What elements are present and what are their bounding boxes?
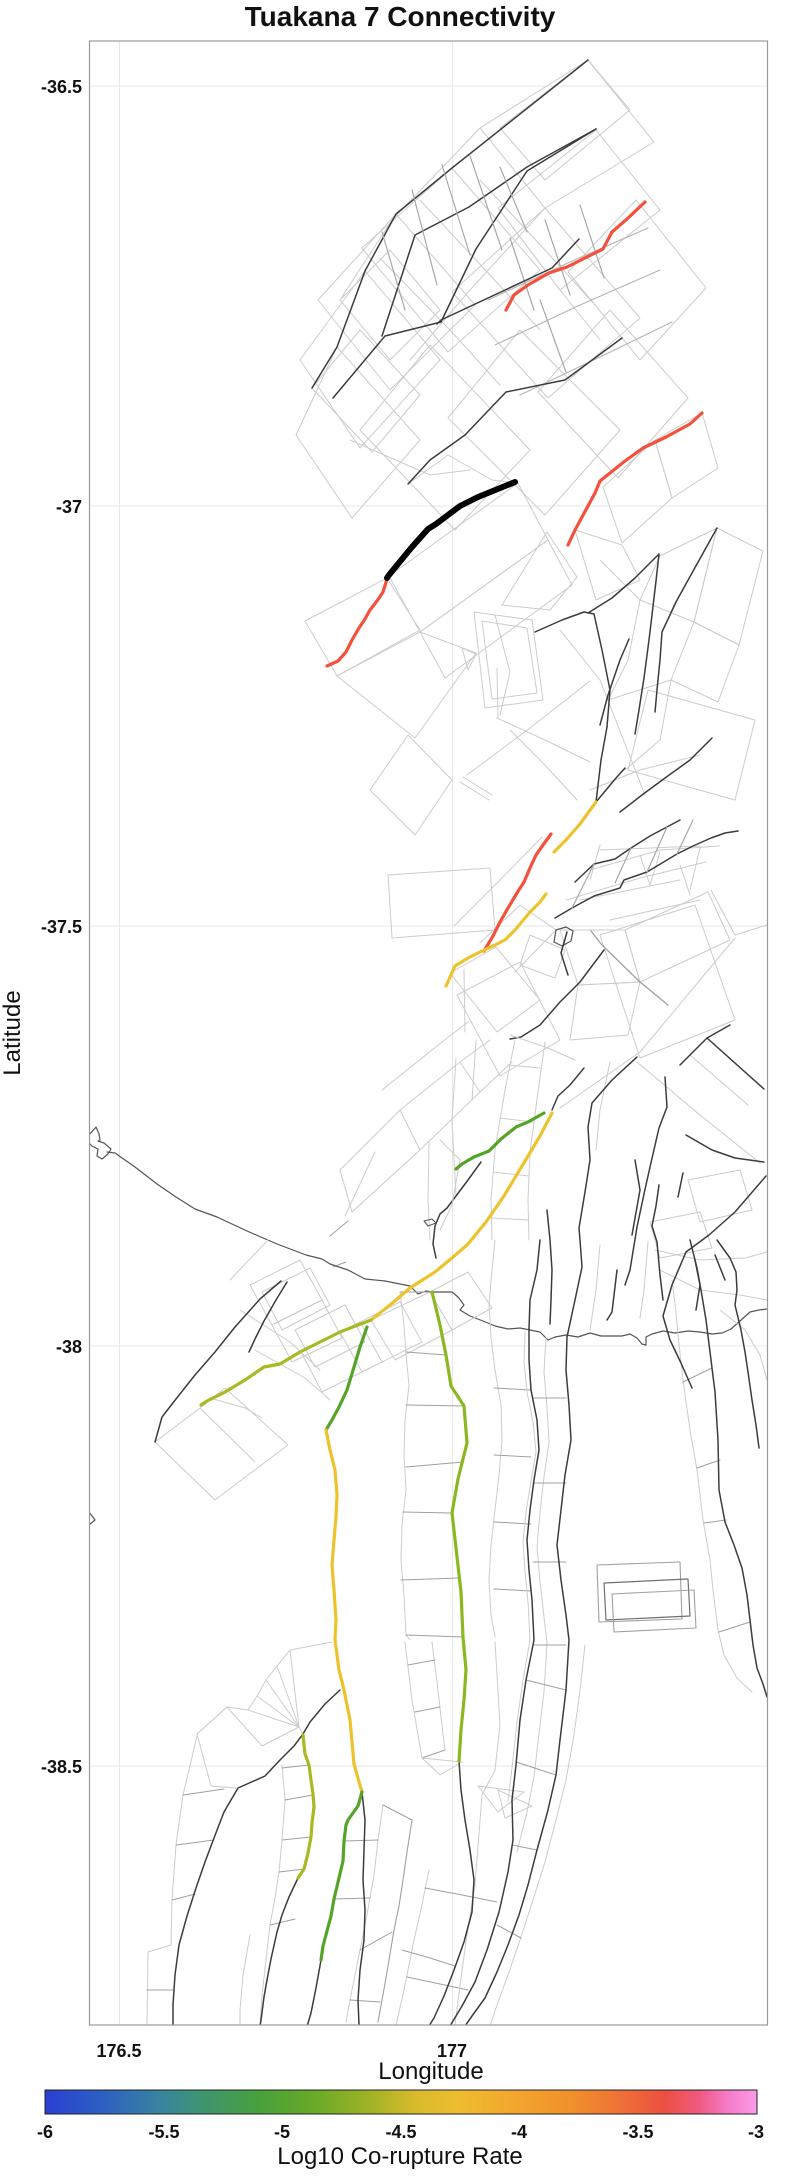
svg-text:-4: -4 xyxy=(511,2122,527,2142)
svg-text:-37.5: -37.5 xyxy=(41,917,82,937)
svg-text:-38.5: -38.5 xyxy=(41,1757,82,1777)
svg-text:-38: -38 xyxy=(56,1337,82,1357)
svg-text:-3.5: -3.5 xyxy=(622,2122,653,2142)
svg-text:Log10 Co-rupture Rate: Log10 Co-rupture Rate xyxy=(277,2143,522,2170)
svg-text:-5.5: -5.5 xyxy=(148,2122,179,2142)
svg-text:Tuakana 7 Connectivity: Tuakana 7 Connectivity xyxy=(245,1,556,32)
svg-text:-3: -3 xyxy=(748,2122,764,2142)
svg-text:-5: -5 xyxy=(274,2122,290,2142)
svg-text:Latitude: Latitude xyxy=(0,990,26,1075)
svg-text:-37: -37 xyxy=(56,497,82,517)
svg-text:-6: -6 xyxy=(37,2122,53,2142)
svg-text:Longitude: Longitude xyxy=(378,2058,483,2085)
svg-text:-36.5: -36.5 xyxy=(41,77,82,97)
svg-text:176.5: 176.5 xyxy=(96,2041,141,2061)
svg-text:-4.5: -4.5 xyxy=(385,2122,416,2142)
